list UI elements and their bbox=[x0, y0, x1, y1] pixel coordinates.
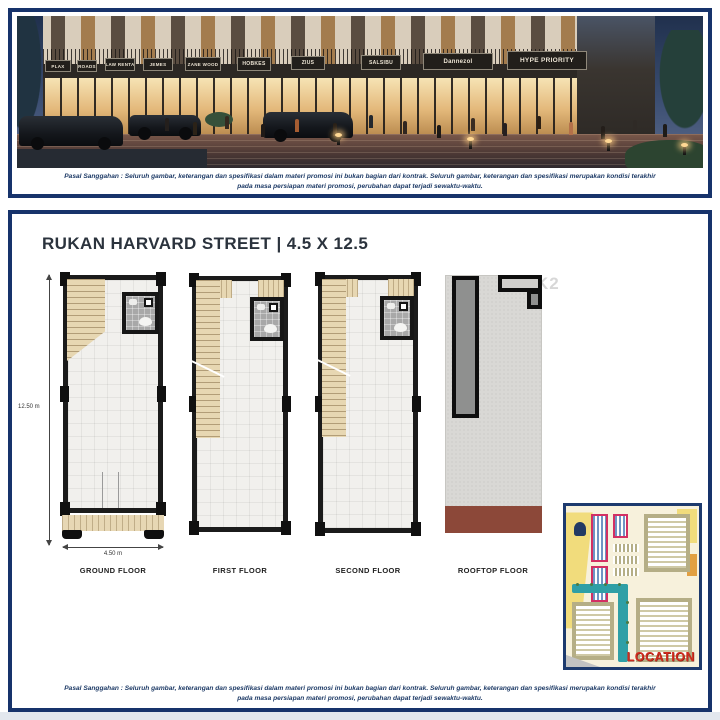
storefront-sign: PLAX bbox=[45, 60, 71, 72]
column-pier bbox=[282, 396, 291, 412]
column-pier bbox=[157, 386, 166, 402]
sign-label: ROADS bbox=[78, 64, 96, 69]
bathroom-niche bbox=[144, 298, 153, 307]
floor-label-second: SECOND FLOOR bbox=[308, 566, 428, 575]
map-building-block bbox=[644, 514, 690, 572]
bathroom bbox=[250, 297, 284, 341]
bollard-light bbox=[337, 136, 340, 145]
sign-label: HYPE PRIORITY bbox=[520, 57, 574, 64]
footer-disclaimer-line1: Pasal Sanggahan : Seluruh gambar, ketera… bbox=[26, 684, 694, 694]
brochure-page: PLAX ROADS LAW RENTA JEMES ZANE WOOD HOB… bbox=[0, 0, 720, 720]
stair-bulkhead bbox=[452, 276, 479, 418]
height-dimension-line bbox=[49, 275, 50, 545]
map-building-row bbox=[613, 568, 639, 576]
column-pier bbox=[156, 272, 166, 286]
shrubs bbox=[625, 140, 703, 168]
car-suv-1 bbox=[19, 116, 123, 146]
bathroom bbox=[122, 292, 159, 334]
map-highlight-block bbox=[591, 514, 608, 562]
page-title: RUKAN HARVARD STREET | 4.5 X 12.5 bbox=[42, 234, 368, 254]
map-highlight-block bbox=[613, 514, 628, 538]
column-pier bbox=[281, 521, 291, 535]
map-building-block bbox=[572, 602, 614, 660]
rooftop-floor-plan bbox=[445, 275, 542, 533]
bathroom bbox=[380, 296, 414, 340]
sign-label: SALSIBU bbox=[369, 60, 393, 66]
entry-canopy bbox=[62, 515, 164, 531]
sink bbox=[387, 303, 395, 309]
footer-disclaimer: Pasal Sanggahan : Seluruh gambar, ketera… bbox=[26, 684, 694, 704]
hero-disclaimer-line1: Pasal Sanggahan : Seluruh gambar, ketera… bbox=[22, 172, 698, 182]
floorplan-panel: RUKAN HARVARD STREET | 4.5 X 12.5 u di P… bbox=[8, 210, 712, 712]
column-pier bbox=[412, 396, 421, 412]
map-building-row bbox=[613, 556, 639, 564]
toilet bbox=[394, 323, 407, 332]
storefront-sign: HOBKES bbox=[237, 57, 271, 71]
bollard-light bbox=[469, 140, 472, 149]
building-rendering: PLAX ROADS LAW RENTA JEMES ZANE WOOD HOB… bbox=[17, 16, 703, 168]
entry-pier bbox=[144, 530, 164, 539]
location-label: LOCATION bbox=[627, 650, 695, 664]
sign-label: HOBKES bbox=[242, 61, 265, 67]
entry-pier bbox=[62, 530, 82, 539]
storefront-sign: LAW RENTA bbox=[105, 58, 135, 71]
storefront-sign: ROADS bbox=[77, 60, 97, 72]
sign-label: JEMES bbox=[150, 62, 167, 67]
road bbox=[17, 149, 207, 168]
hero-disclaimer: Pasal Sanggahan : Seluruh gambar, ketera… bbox=[22, 172, 698, 192]
storefront-sign: Dannezol bbox=[423, 53, 493, 70]
column-pier bbox=[60, 502, 70, 516]
ground-floor-plan bbox=[63, 275, 163, 513]
storefront-sign: JEMES bbox=[143, 58, 173, 71]
map-building-row bbox=[613, 544, 639, 552]
bollard-light bbox=[607, 142, 610, 151]
storefront-sign: HYPE PRIORITY bbox=[507, 51, 587, 70]
column-pier bbox=[189, 521, 199, 535]
bathroom-niche bbox=[269, 303, 278, 312]
column-pier bbox=[315, 522, 325, 536]
stair-landing bbox=[258, 280, 284, 298]
entry-door-line bbox=[118, 472, 119, 508]
hero-panel: PLAX ROADS LAW RENTA JEMES ZANE WOOD HOB… bbox=[8, 8, 712, 198]
width-dimension-line bbox=[63, 547, 163, 548]
sign-label: ZANE WOOD bbox=[188, 62, 219, 67]
location-map: LOCATION bbox=[563, 503, 702, 670]
staircase bbox=[67, 279, 105, 361]
bathroom-niche bbox=[399, 302, 408, 311]
column-pier bbox=[60, 386, 69, 402]
entry-canopy-roof bbox=[445, 506, 542, 533]
sink bbox=[257, 304, 265, 310]
staircase bbox=[322, 279, 346, 437]
hero-disclaimer-line2: pada masa persiapan materi promosi, peru… bbox=[22, 182, 698, 192]
storefront-sign: SALSIBU bbox=[361, 55, 401, 70]
sign-label: ZIUS bbox=[302, 60, 315, 66]
map-trees bbox=[576, 583, 579, 586]
sink bbox=[129, 299, 137, 305]
sign-label: Dannezol bbox=[443, 59, 472, 65]
column-pier bbox=[156, 502, 166, 516]
toilet bbox=[139, 317, 152, 326]
stair-landing bbox=[388, 279, 414, 297]
pedestrian-silhouettes bbox=[165, 118, 169, 131]
page-bottom-margin bbox=[0, 712, 720, 720]
floor-label-rooftop: ROOFTOP FLOOR bbox=[433, 566, 553, 575]
second-floor-plan bbox=[318, 275, 418, 533]
column-pier bbox=[411, 522, 421, 536]
staircase bbox=[196, 280, 220, 438]
planter bbox=[205, 112, 233, 127]
toilet bbox=[264, 324, 277, 333]
map-logo bbox=[574, 522, 586, 536]
footer-disclaimer-line2: pada masa persiapan materi promosi, peru… bbox=[26, 694, 694, 704]
floor-label-ground: GROUND FLOOR bbox=[53, 566, 173, 575]
width-dimension-label: 4.50 m bbox=[63, 551, 163, 557]
sign-label: PLAX bbox=[51, 64, 64, 69]
tree-right bbox=[653, 30, 703, 142]
entry-door-line bbox=[102, 472, 103, 508]
corner-tower bbox=[577, 16, 655, 136]
sign-label: LAW RENTA bbox=[105, 62, 134, 67]
storefront-sign: ZIUS bbox=[291, 56, 325, 70]
bollard-light bbox=[683, 146, 686, 155]
first-floor-plan bbox=[192, 276, 288, 532]
floor-label-first: FIRST FLOOR bbox=[180, 566, 300, 575]
storefront-sign: ZANE WOOD bbox=[185, 57, 221, 71]
rooftop-structure bbox=[527, 290, 542, 309]
height-dimension-label: 12.50 m bbox=[18, 404, 40, 410]
